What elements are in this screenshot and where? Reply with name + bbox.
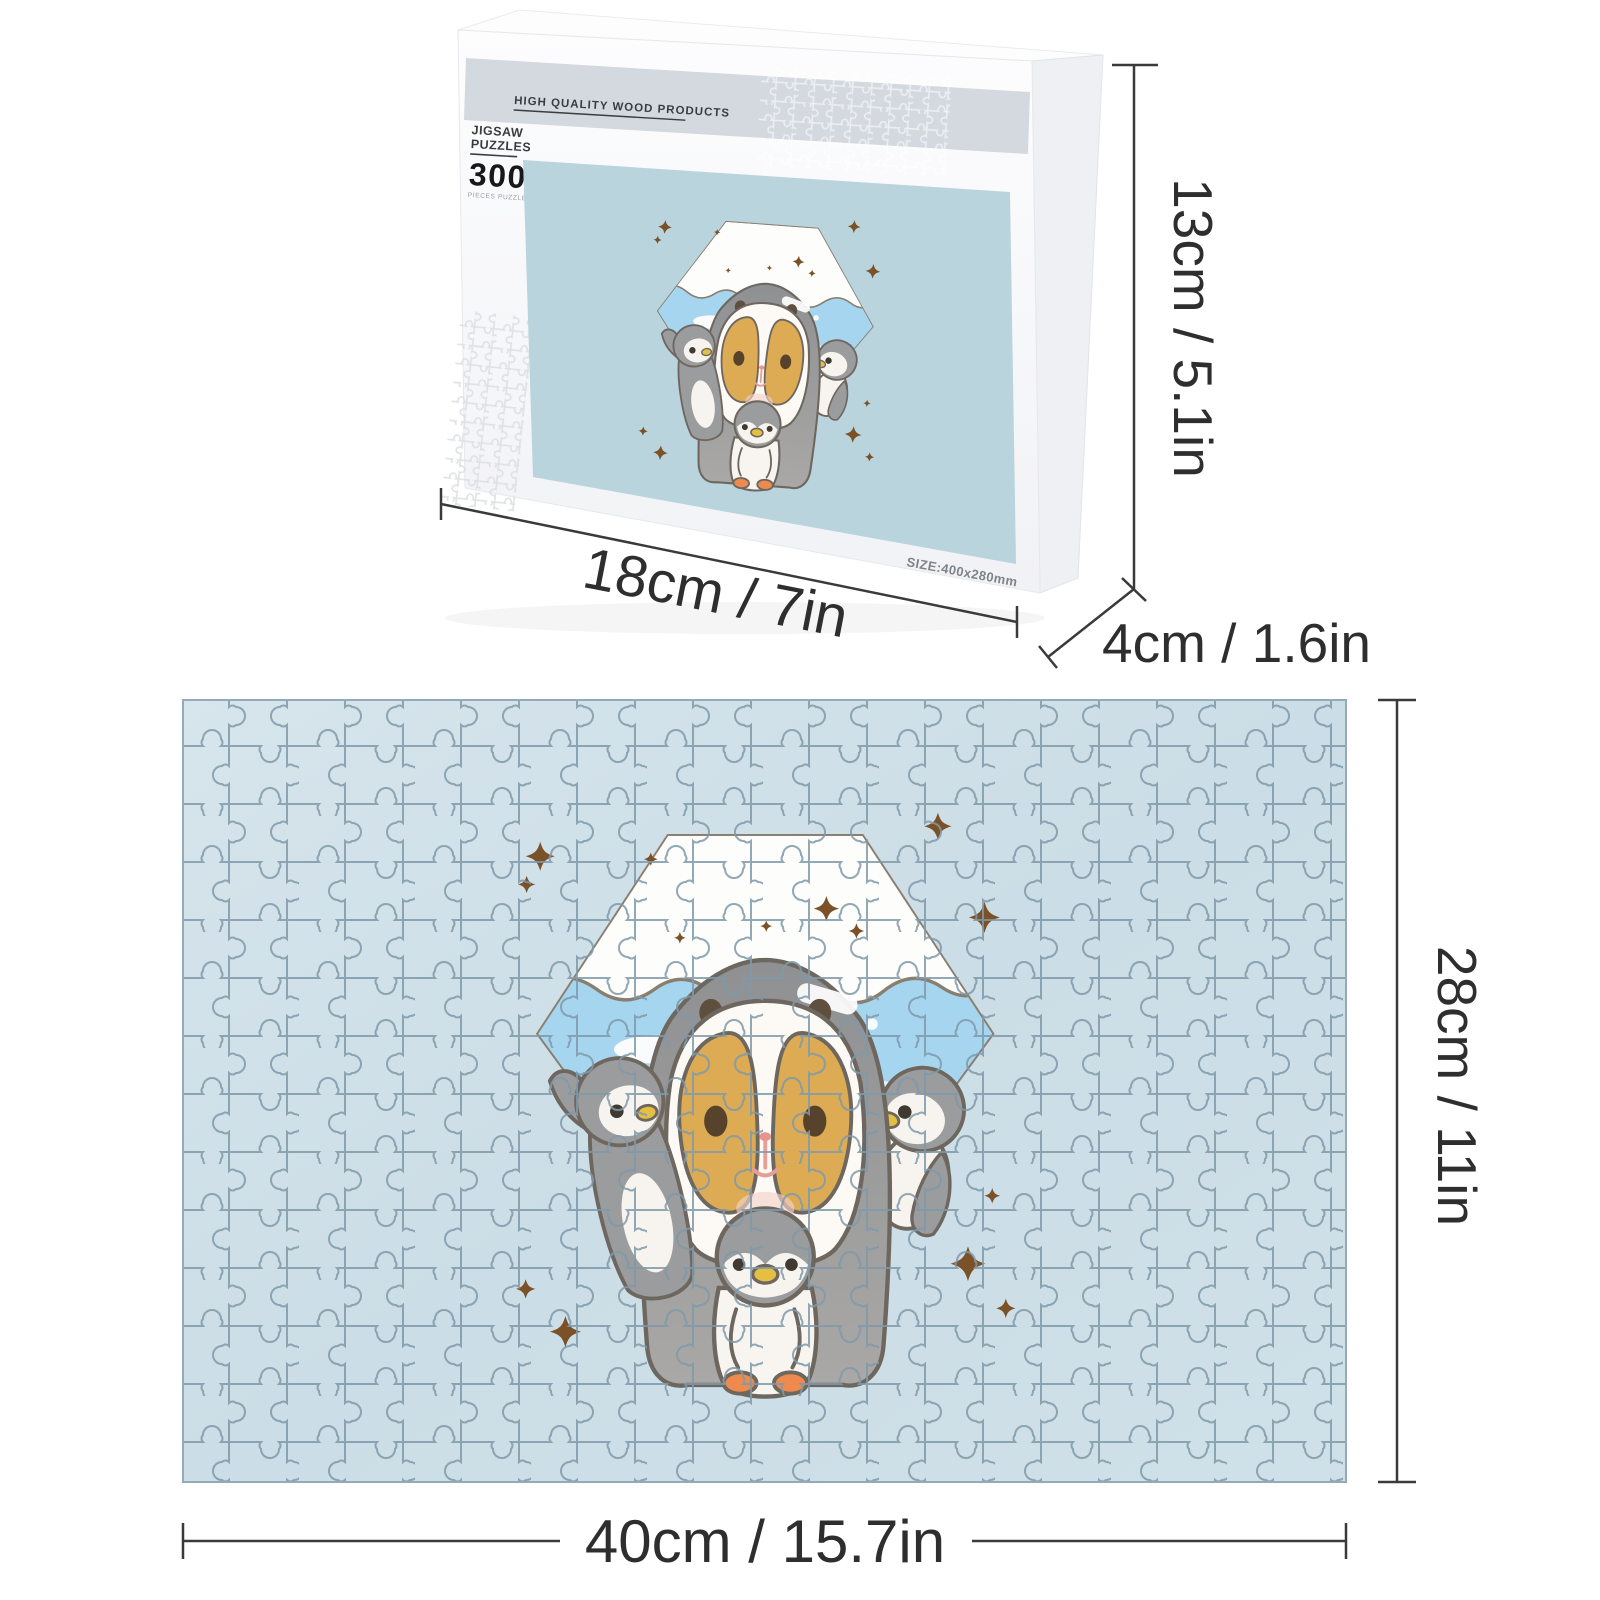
dimension-label-puzzle-width: 40cm / 15.7in (585, 1508, 945, 1575)
puzzle-piece-grid (183, 700, 1346, 1482)
product-mockup-page: HIGH QUALITY WOOD PRODUCTS JIGSAW PUZZLE… (0, 0, 1600, 1600)
dimension-label-box-depth: 4cm / 1.6in (1102, 612, 1371, 674)
assembled-puzzle (183, 700, 1346, 1482)
puzzle-box: HIGH QUALITY WOOD PRODUCTS JIGSAW PUZZLE… (441, 10, 1103, 634)
box-side-label: JIGSAW PUZZLES 300 PIECES PUZZLE (468, 123, 533, 202)
box-band-puzzle-watermark (756, 66, 952, 177)
box-side-face (1032, 55, 1103, 593)
piece-count: 300 (468, 156, 528, 195)
mockup-canvas: HIGH QUALITY WOOD PRODUCTS JIGSAW PUZZLE… (0, 0, 1600, 1600)
dimension-label-box-height: 13cm / 5.1in (1162, 178, 1224, 478)
dimension-label-puzzle-height: 28cm / 11in (1426, 946, 1488, 1226)
